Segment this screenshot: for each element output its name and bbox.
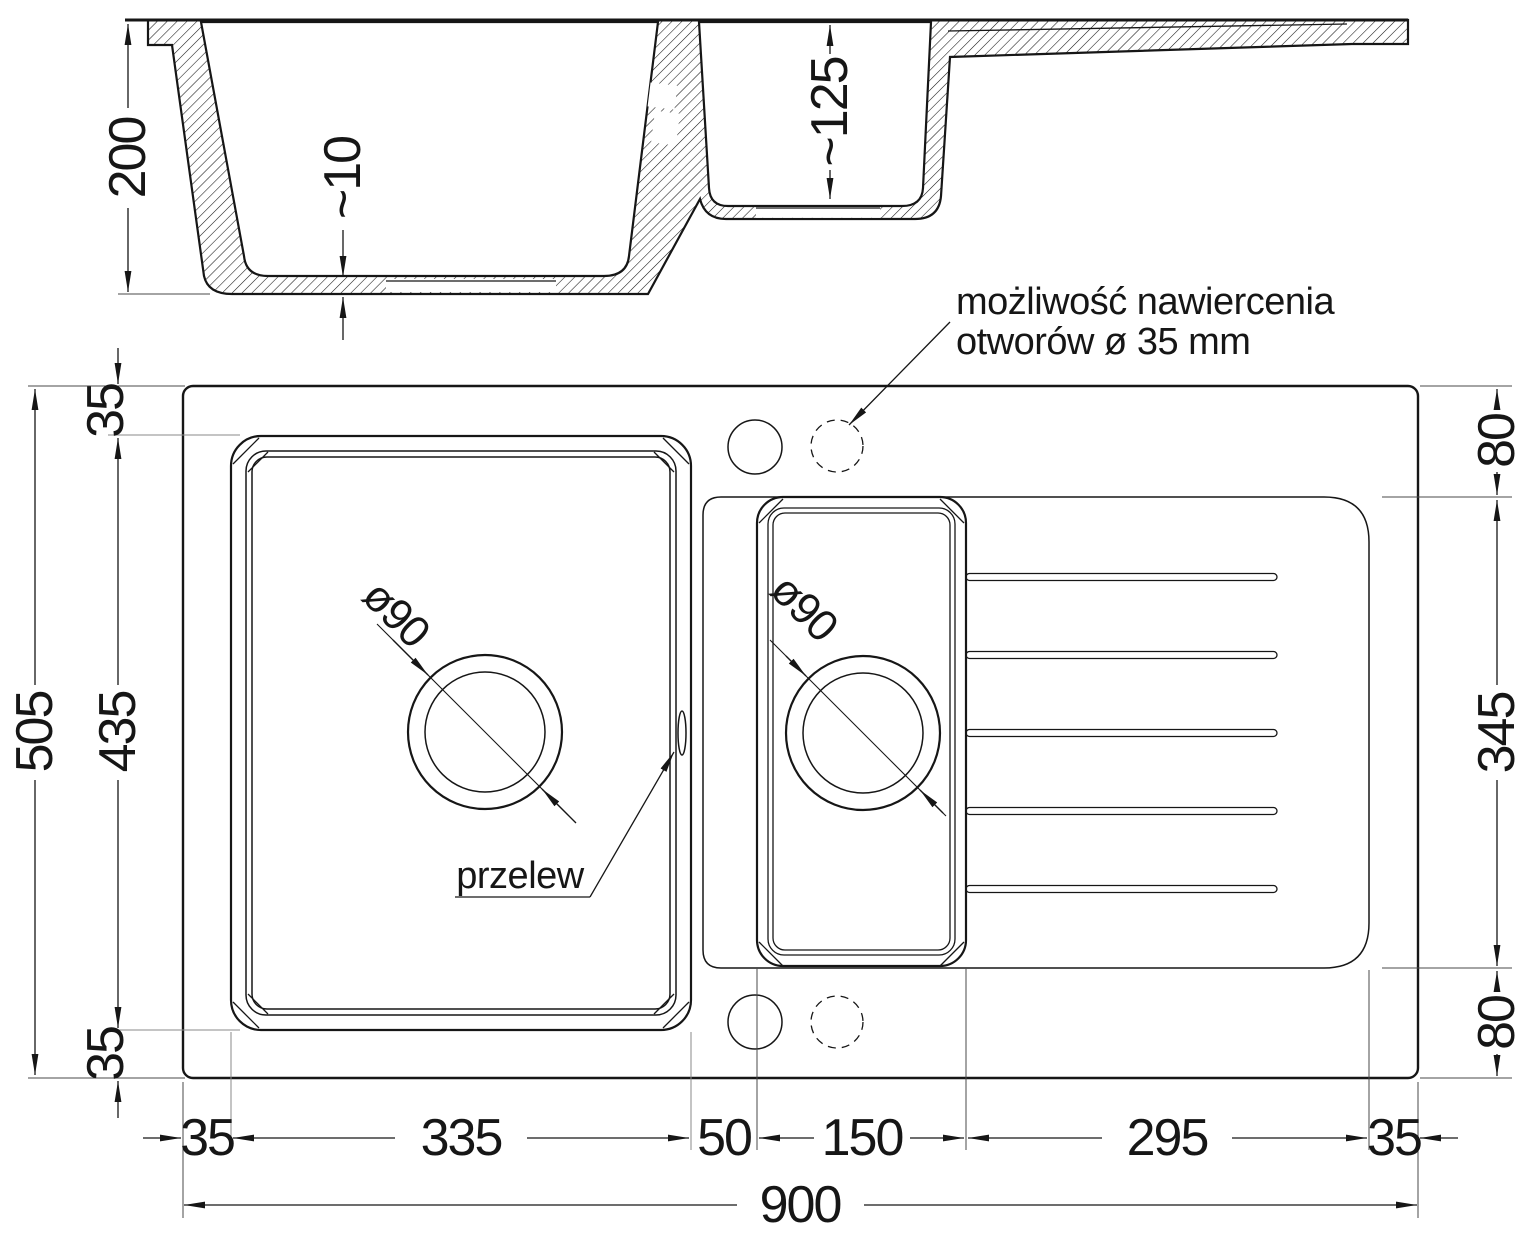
dim-label-335: 335	[421, 1109, 502, 1167]
dim-label-b35-left: 35	[180, 1109, 234, 1167]
drainer-grooves	[966, 574, 1277, 893]
sink-outline	[183, 386, 1418, 1078]
plan-view: ø90 ø90 przelew możliwość nawiercenia ot…	[6, 281, 1526, 1234]
dim-label-435: 435	[89, 692, 147, 773]
dim-label-80-top: 80	[1468, 414, 1526, 468]
dim-label-295: 295	[1127, 1109, 1208, 1167]
overflow-hole	[678, 711, 686, 755]
drill-note: możliwość nawiercenia otworów ø 35 mm	[849, 281, 1335, 425]
main-bowl	[231, 436, 691, 1030]
main-bowl-inner-1	[246, 451, 676, 1015]
dim-label-900: 900	[760, 1176, 841, 1234]
main-drain: ø90	[353, 571, 576, 823]
small-bowl-corner-bevels	[759, 499, 964, 966]
groove-4	[966, 808, 1277, 815]
drill-note-line1: możliwość nawiercenia	[956, 281, 1335, 323]
dim-floor-thickness-10: ~10	[314, 137, 372, 340]
drill-note-line2: otworów ø 35 mm	[956, 321, 1250, 363]
sink-drawing-svg: 200 ~10 ~125	[0, 0, 1534, 1242]
dim-small-bowl-depth-125: ~125	[801, 25, 859, 199]
groove-2	[966, 652, 1277, 659]
overflow-annotation: przelew	[455, 711, 686, 897]
dim-label-505: 505	[6, 692, 64, 773]
main-bowl-inner-2	[252, 457, 670, 1009]
technical-drawing-page: 200 ~10 ~125	[0, 0, 1534, 1242]
optional-hole-top-dashed	[811, 420, 863, 472]
dim-left-505: 505	[6, 389, 64, 1075]
faucet-hole-bottom	[728, 995, 782, 1049]
partition-gap-1	[648, 83, 678, 110]
dim-label-10: ~10	[314, 137, 372, 219]
dim-right-345: 345	[1468, 500, 1526, 966]
groove-5	[966, 886, 1277, 893]
dim-label-35-bottom: 35	[77, 1027, 135, 1081]
optional-hole-bottom-dashed	[811, 996, 863, 1048]
main-bowl-outer	[231, 436, 691, 1030]
dim-label-35-top: 35	[77, 384, 135, 438]
dim-label-345: 345	[1468, 693, 1526, 774]
overflow-label: przelew	[456, 855, 584, 897]
dim-label-125: ~125	[801, 57, 859, 166]
groove-1	[966, 574, 1277, 581]
dim-left-35-top: 35	[77, 348, 135, 438]
dim-left-435: 435	[89, 438, 147, 1028]
dim-label-80-bottom: 80	[1468, 996, 1526, 1050]
main-bowl-corner-bevels	[233, 438, 689, 1028]
dim-left-35-bottom: 35	[77, 1027, 135, 1118]
dim-label-200: 200	[99, 118, 157, 199]
dim-right-80-top: 80	[1468, 389, 1526, 495]
groove-3	[966, 730, 1277, 737]
partition-gap-2	[651, 111, 680, 146]
small-drain: ø90	[761, 565, 946, 816]
dim-label-50: 50	[697, 1109, 751, 1167]
dim-label-b35-right: 35	[1367, 1109, 1421, 1167]
dim-label-150: 150	[822, 1109, 903, 1167]
dim-bottom-total-900: 900	[184, 1176, 1417, 1234]
extension-lines	[28, 386, 1512, 1218]
main-drain-diameter-label: ø90	[353, 571, 439, 657]
small-drain-diameter-label: ø90	[761, 565, 847, 651]
faucet-hole-top	[728, 420, 782, 474]
dim-bottom-row: 35 335 50 150 295 35	[143, 1109, 1458, 1167]
dim-right-80-bottom: 80	[1468, 971, 1526, 1076]
